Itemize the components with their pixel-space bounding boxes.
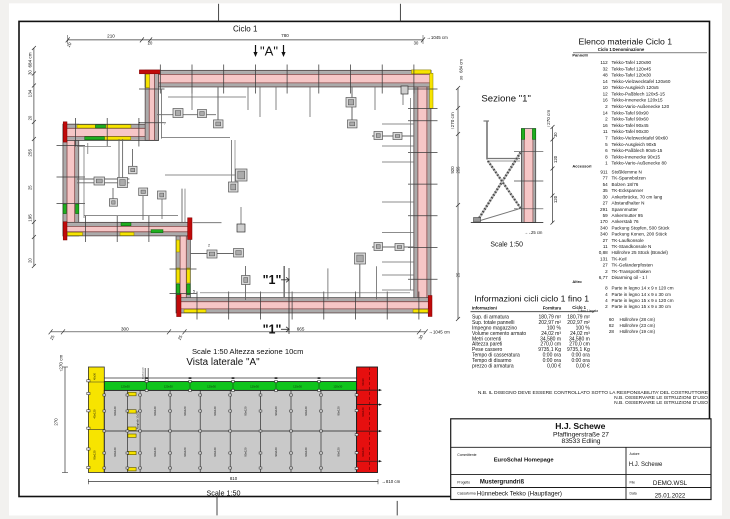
svg-text:54: 54 [603, 182, 609, 187]
svg-text:45x30: 45x30 [93, 372, 97, 380]
svg-text:Vista laterale "A": Vista laterale "A" [186, 357, 260, 368]
svg-text:7: 7 [138, 122, 140, 126]
svg-text:Ciclo 1: Ciclo 1 [233, 24, 258, 33]
svg-text:Hüllrohre (28 cm): Hüllrohre (28 cm) [620, 317, 656, 322]
svg-text:Stoßklemme N: Stoßklemme N [612, 170, 642, 175]
svg-text:665: 665 [297, 327, 305, 332]
svg-text:684 cm: 684 cm [28, 52, 33, 67]
svg-text:DEMO.WSL: DEMO.WSL [653, 480, 688, 487]
svg-text:Tekko-Tafel 120x30: Tekko-Tafel 120x30 [612, 73, 652, 78]
svg-text:Ankerstab 76: Ankerstab 76 [612, 219, 640, 224]
svg-text:Scale 1:50: Scale 1:50 [490, 242, 523, 249]
svg-text:H.J. Schewe: H.J. Schewe [629, 462, 663, 468]
svg-text:N.B. OSSERVARE LE ISTRUZIONI D: N.B. OSSERVARE LE ISTRUZIONI D’USO [614, 400, 708, 406]
svg-text:120: 120 [553, 195, 558, 203]
svg-text:Tekko-Innenecke 120x15: Tekko-Innenecke 120x15 [612, 98, 664, 103]
svg-text:2: 2 [605, 269, 608, 274]
svg-text:Hüllrohre 25 Stück (Bündel): Hüllrohre 25 Stück (Bündel) [612, 250, 669, 255]
svg-text:30: 30 [414, 40, 419, 45]
svg-text:Tekko-Vario-Außenecke 120: Tekko-Vario-Außenecke 120 [612, 104, 670, 109]
svg-text:90x120: 90x120 [183, 406, 187, 416]
svg-text:Sezione "1": Sezione "1" [481, 94, 530, 105]
svg-text:4: 4 [605, 298, 608, 303]
svg-text:90x120: 90x120 [243, 406, 247, 416]
svg-text:90x120: 90x120 [153, 447, 157, 457]
svg-text:45x120: 45x120 [93, 409, 97, 419]
svg-text:14: 14 [603, 79, 609, 84]
svg-text:Tekko-Tafel 90x45: Tekko-Tafel 90x45 [612, 123, 649, 128]
svg-text:File: File [630, 480, 636, 484]
svg-text:Parte in legno 15 x 9 x 120 cm: Parte in legno 15 x 9 x 120 cm [612, 298, 674, 303]
svg-text:Elenco materiale Ciclo 1: Elenco materiale Ciclo 1 [578, 36, 672, 46]
svg-text:170: 170 [600, 219, 608, 224]
svg-text:270: 270 [54, 418, 59, 426]
svg-text:20: 20 [28, 115, 33, 120]
svg-text:16: 16 [603, 123, 609, 128]
svg-text:→1045 cm: →1045 cm [427, 35, 449, 40]
svg-text:0,88: 0,88 [599, 250, 608, 255]
svg-text:Tekko-Ausgleich 120x5: Tekko-Ausgleich 120x5 [612, 85, 660, 90]
svg-text:90x120: 90x120 [153, 406, 157, 416]
svg-text:N.B. OSSERVARE LE ISTRUZIONI D: N.B. OSSERVARE LE ISTRUZIONI D’USO [614, 395, 708, 401]
svg-text:32: 32 [603, 66, 609, 71]
svg-text:TK-Eckspanner: TK-Eckspanner [612, 188, 644, 193]
svg-text:5: 5 [193, 290, 195, 294]
svg-text:Ankermutter 95: Ankermutter 95 [612, 213, 644, 218]
svg-text:TK-Standkonsole N: TK-Standkonsole N [612, 244, 652, 249]
svg-text:→1045 cm: →1045 cm [429, 329, 451, 334]
svg-text:Tekko-Ausgleich 90x5: Tekko-Ausgleich 90x5 [612, 142, 657, 147]
svg-text:684 cm: 684 cm [459, 59, 464, 73]
svg-text:EuroSchal Homepage: EuroSchal Homepage [494, 458, 555, 464]
svg-text:90x120: 90x120 [336, 447, 340, 457]
svg-text:28: 28 [609, 329, 615, 334]
svg-text:Tekko-Tafel 90x90: Tekko-Tafel 90x90 [612, 110, 649, 115]
svg-text:90x120: 90x120 [274, 406, 278, 416]
svg-text:Packung Konen, 200 Stück: Packung Konen, 200 Stück [612, 232, 668, 237]
svg-text:Progetto: Progetto [457, 480, 470, 484]
svg-text:77: 77 [603, 176, 609, 181]
svg-text:Cassaforma: Cassaforma [457, 491, 475, 495]
svg-text:Spannmutter: Spannmutter [612, 207, 639, 212]
svg-text:Packung Stopfen, 500 Stück: Packung Stopfen, 500 Stück [612, 225, 671, 230]
svg-text:30: 30 [553, 132, 558, 137]
svg-text:120x30: 120x30 [333, 385, 342, 389]
svg-text:Hünnebeck Tekko (Hauptlager): Hünnebeck Tekko (Hauptlager) [477, 490, 562, 497]
svg-text:2: 2 [605, 104, 608, 109]
svg-text:Ausgleich 10x270: Ausgleich 10x270 [137, 410, 140, 429]
svg-text:90x120: 90x120 [361, 407, 365, 417]
svg-text:810: 810 [230, 476, 238, 481]
svg-text:120x30: 120x30 [207, 385, 216, 389]
svg-text:300: 300 [121, 327, 129, 332]
svg-text:0,00 €: 0,00 € [576, 364, 590, 370]
svg-text:14: 14 [603, 110, 609, 115]
svg-text:Disarming oil - 1 l: Disarming oil - 1 l [612, 275, 647, 280]
svg-text:TK-Spannbolzen: TK-Spannbolzen [612, 176, 647, 181]
svg-text:255: 255 [456, 166, 461, 174]
svg-text:5: 5 [605, 142, 608, 147]
svg-text:Hüllrohre (19 cm): Hüllrohre (19 cm) [620, 329, 656, 334]
svg-text:TK-Laufkonsole: TK-Laufkonsole [612, 238, 645, 243]
svg-text:Bolzen 18/76: Bolzen 18/76 [612, 182, 639, 187]
svg-text:12: 12 [603, 92, 609, 97]
svg-text:Hüllrohre (23 cm): Hüllrohre (23 cm) [620, 323, 656, 328]
svg-text:Laufkonsole: Laufkonsole [143, 366, 145, 379]
svg-text:27: 27 [603, 238, 609, 243]
svg-text:90x120: 90x120 [243, 447, 247, 457]
svg-text:Abstandhalter N: Abstandhalter N [612, 201, 645, 206]
svg-text:Pannelli: Pannelli [572, 53, 587, 58]
svg-text:82: 82 [609, 323, 615, 328]
svg-text:16: 16 [603, 98, 609, 103]
svg-text:Altro: Altro [572, 279, 582, 284]
svg-text:120x30: 120x30 [293, 385, 302, 389]
svg-text:Tekko-Vielzwecktafel 90x60: Tekko-Vielzwecktafel 90x60 [612, 136, 669, 141]
svg-text:2: 2 [605, 117, 608, 122]
svg-text:Tekko-Tafel 90x60: Tekko-Tafel 90x60 [612, 117, 649, 122]
svg-text:20: 20 [148, 41, 153, 46]
svg-text:↑270 cm: ↑270 cm [546, 110, 551, 128]
svg-text:120: 120 [553, 155, 558, 163]
svg-text:340: 340 [600, 225, 608, 230]
svg-text:Mustergrundriß: Mustergrundriß [480, 479, 525, 485]
svg-text:30: 30 [459, 75, 464, 80]
svg-text:25: 25 [28, 185, 33, 190]
svg-text:2: 2 [605, 304, 608, 309]
svg-text:Tekko-Tafel 90x30: Tekko-Tafel 90x30 [612, 129, 649, 134]
svg-text:Tekko-Innenecke 90x15: Tekko-Innenecke 90x15 [612, 154, 661, 159]
svg-text:120x30: 120x30 [250, 385, 259, 389]
svg-text:Autore: Autore [630, 452, 640, 456]
svg-text:120x30: 120x30 [164, 385, 173, 389]
svg-text:90x120: 90x120 [183, 447, 187, 457]
svg-text:0,00 €: 0,00 € [547, 364, 561, 370]
svg-text:90x120: 90x120 [336, 406, 340, 416]
svg-text:911: 911 [600, 170, 608, 175]
svg-text:2: 2 [208, 244, 210, 248]
svg-text:48: 48 [603, 73, 609, 78]
svg-text:30: 30 [603, 194, 609, 199]
svg-text:120x30: 120x30 [121, 385, 130, 389]
svg-text:25: 25 [456, 272, 461, 277]
svg-text:↑270 cm: ↑270 cm [450, 112, 455, 130]
svg-text:↑270 cm: ↑270 cm [59, 354, 64, 372]
svg-text:TK-Transporthaken: TK-Transporthaken [612, 269, 652, 274]
svg-text:Tekko-Paßblech 120x5-15: Tekko-Paßblech 120x5-15 [612, 92, 666, 97]
svg-text:90x120: 90x120 [113, 447, 117, 457]
svg-text:Scale 1:50: Scale 1:50 [207, 489, 241, 498]
svg-text:210: 210 [107, 34, 115, 39]
svg-text:90x120: 90x120 [93, 450, 97, 460]
svg-text:90x120: 90x120 [361, 447, 365, 457]
svg-text:90x120: 90x120 [213, 406, 217, 416]
svg-text:Parte in legno 15 x 9 x 30 cm: Parte in legno 15 x 9 x 30 cm [612, 304, 672, 309]
svg-text:"1": "1" [263, 273, 282, 287]
svg-text:90x120: 90x120 [113, 406, 117, 416]
svg-text:6: 6 [605, 148, 608, 153]
svg-text:59: 59 [603, 213, 609, 218]
svg-text:131: 131 [600, 256, 608, 261]
svg-text:920: 920 [450, 166, 455, 174]
svg-text:780: 780 [281, 33, 289, 38]
svg-text:27: 27 [603, 201, 609, 206]
svg-text:Scale 1:50 Altezza sezione 1: Scale 1:50 Altezza sezione 10cm [192, 347, 303, 356]
svg-text:11: 11 [603, 129, 608, 134]
svg-text:25.01.2022: 25.01.2022 [655, 492, 686, 499]
svg-text:35: 35 [603, 188, 609, 193]
svg-text:10: 10 [603, 85, 609, 90]
svg-text:7: 7 [164, 122, 166, 126]
svg-text:"A": "A" [260, 44, 278, 59]
svg-text:→810 cm: →810 cm [382, 479, 401, 484]
svg-text:255: 255 [28, 149, 33, 157]
svg-text:4: 4 [605, 292, 608, 297]
svg-text:1: 1 [605, 161, 608, 166]
svg-text:340: 340 [600, 232, 608, 237]
svg-text:6,77: 6,77 [599, 275, 608, 280]
svg-text:90x120: 90x120 [274, 447, 278, 457]
svg-text:25 cm: 25 cm [531, 230, 543, 235]
svg-text:Denominazione: Denominazione [613, 47, 645, 52]
svg-text:"1": "1" [263, 322, 282, 336]
svg-text:11: 11 [603, 244, 608, 249]
svg-text:27: 27 [603, 263, 609, 268]
svg-text:Tekko-Tafel 120x45: Tekko-Tafel 120x45 [612, 66, 652, 71]
svg-text:Parte in legno 14 x 9 x 120 cm: Parte in legno 14 x 9 x 120 cm [612, 286, 674, 291]
svg-text:Accessori: Accessori [572, 164, 591, 169]
svg-text:1 fino 1 legata: 1 fino 1 legata [578, 309, 598, 313]
svg-text:134: 134 [28, 89, 33, 97]
svg-text:Informazioni cicli ciclo 1 fi: Informazioni cicli ciclo 1 fino 1 [474, 294, 589, 304]
svg-text:H.J. Schewe: H.J. Schewe [555, 421, 605, 431]
svg-text:N.B. IL DISEGNO DEVE ESSERE CO: N.B. IL DISEGNO DEVE ESSERE CONTROLLATO … [478, 390, 709, 396]
svg-text:8: 8 [605, 286, 608, 291]
svg-text:112: 112 [600, 60, 608, 65]
svg-text:90x120: 90x120 [304, 406, 308, 416]
svg-text:Committente: Committente [457, 453, 476, 457]
svg-text:195: 195 [28, 214, 33, 222]
svg-text:30: 30 [28, 70, 33, 75]
svg-text:prezzo di armatura: prezzo di armatura [472, 364, 514, 370]
svg-text:Informazioni: Informazioni [472, 305, 497, 310]
svg-text:TK-Keil: TK-Keil [612, 256, 627, 261]
svg-text:Tekko-Tafel 120x90: Tekko-Tafel 120x90 [612, 60, 652, 65]
svg-text:Ciclo 1: Ciclo 1 [598, 47, 613, 52]
svg-text:291: 291 [600, 207, 608, 212]
svg-text:TK-Geländerpfosten: TK-Geländerpfosten [612, 263, 654, 268]
svg-text:Tekko-Vielzwecktafel 120x60: Tekko-Vielzwecktafel 120x60 [612, 79, 671, 84]
svg-text:8: 8 [605, 154, 608, 159]
svg-text:90x120: 90x120 [213, 447, 217, 457]
svg-text:Fornitura: Fornitura [543, 305, 562, 310]
svg-text:7: 7 [605, 136, 608, 141]
svg-text:60: 60 [609, 317, 615, 322]
svg-text:Tekko-Paßblech 90x5-15: Tekko-Paßblech 90x5-15 [612, 148, 663, 153]
svg-text:Tekko-Vario-Außenecke 80: Tekko-Vario-Außenecke 80 [612, 161, 668, 166]
svg-text:90x30: 90x30 [361, 378, 365, 386]
svg-text:Data: Data [630, 491, 637, 495]
svg-text:83533 Edling: 83533 Edling [561, 438, 600, 445]
svg-text:Parte in legno 14 x 9 x 30 cm: Parte in legno 14 x 9 x 30 cm [612, 292, 672, 297]
svg-text:Ankerbrücke, 70 cm lang: Ankerbrücke, 70 cm lang [612, 194, 663, 199]
svg-text:20: 20 [28, 258, 33, 263]
svg-text:90x120: 90x120 [304, 447, 308, 457]
